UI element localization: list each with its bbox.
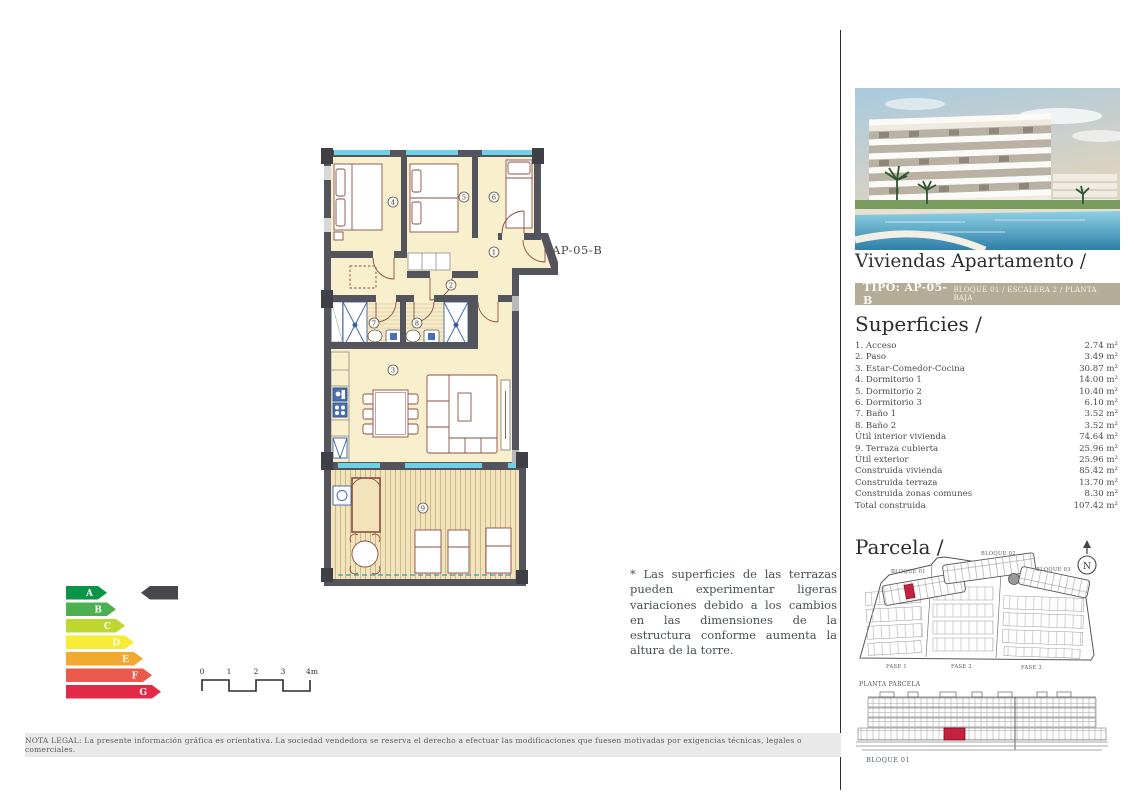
terrace-storage [352,478,380,532]
svg-text:BLOQUE 02: BLOQUE 02 [981,551,1016,557]
energy-pointer-icon [141,586,178,600]
superficies-row-value: 25.96 m² [1079,444,1118,455]
superficies-row: 4. Dormitorio 114.00 m² [855,375,1118,386]
highlighted-unit-elevation [944,728,965,740]
superficies-row-label: Total construida [855,501,926,512]
superficies-row-label: 4. Dormitorio 1 [855,375,922,386]
superficies-row: Útil exterior25.96 m² [855,455,1118,466]
site-plan: BLOQUE 01 BLOQUE 02 BLOQUE 03 FASE 1 FAS… [853,535,1120,690]
svg-text:B: B [94,606,102,616]
superficies-row-label: Construida terraza [855,478,937,489]
superficies-row-value: 8.30 m² [1085,489,1118,500]
bedroom3-bed [506,160,532,228]
svg-text:5: 5 [462,194,466,202]
svg-text:D: D [112,639,120,649]
floor-bands [858,698,1106,740]
shower-2 [444,302,468,348]
type-badge-location: BLOQUE 01 / ESCALERA 2 / PLANTA BAJA [953,286,1112,302]
svg-text:N: N [1083,562,1091,572]
page-title: Viviendas Apartamento / [855,251,1086,272]
superficies-row-label: Construida vivienda [855,466,942,477]
terrace-note: * Las superficies de las terrazas pueden… [630,567,837,659]
dining-table [363,390,418,437]
building-elevation: BLOQUE 01 [852,690,1112,766]
site-plan-caption: PLANTA PARCELA [859,681,921,688]
superficies-row-value: 10.40 m² [1079,387,1118,398]
bedroom1-bed [334,164,382,240]
superficies-row-value: 85.42 m² [1079,466,1118,477]
svg-text:C: C [104,622,111,632]
wardrobe [408,253,450,270]
superficies-row-value: 2.74 m² [1085,341,1118,352]
superficies-row: 3. Estar-Comedor-Cocina30.87 m² [855,364,1118,375]
svg-text:6: 6 [492,194,496,202]
brochure-page: 1 2 3 4 5 6 7 8 9 AP-05-B * Las superfic… [0,0,1134,800]
sink-1 [368,330,382,342]
superficies-row: Construida zonas comunes8.30 m² [855,489,1118,500]
elevation-label: BLOQUE 01 [866,756,910,764]
superficies-row: 6. Dormitorio 36.10 m² [855,398,1118,409]
superficies-row: Construida vivienda85.42 m² [855,466,1118,477]
type-badge: TIPO: AP-05-B BLOQUE 01 / ESCALERA 2 / P… [855,283,1120,305]
svg-text:E: E [122,655,129,665]
svg-text:8: 8 [415,320,419,328]
svg-text:A: A [85,589,94,599]
svg-text:BLOQUE 03: BLOQUE 03 [1036,567,1071,573]
svg-text:FASE 1: FASE 1 [886,664,907,670]
superficies-row: 2. Paso3.49 m² [855,352,1118,363]
superficies-row-value: 3.52 m² [1085,421,1118,432]
superficies-row: 1. Acceso2.74 m² [855,341,1118,352]
vertical-divider [840,30,841,790]
svg-text:9: 9 [421,505,425,513]
building-photo [855,88,1120,250]
superficies-row: Construida terraza13.70 m² [855,478,1118,489]
superficies-row-value: 107.42 m² [1074,501,1118,512]
superficies-list: 1. Acceso2.74 m²2. Paso3.49 m²3. Estar-C… [855,341,1118,512]
unit-code-label: AP-05-B [552,243,602,257]
type-badge-code: TIPO: AP-05-B [863,281,953,307]
svg-text:BLOQUE 01: BLOQUE 01 [891,569,926,575]
superficies-row-label: 3. Estar-Comedor-Cocina [855,364,965,375]
superficies-row-value: 6.10 m² [1085,398,1118,409]
floor-plan: 1 2 3 4 5 6 7 8 9 [318,146,558,596]
sink-2 [406,330,420,342]
roof-line [868,692,1096,697]
superficies-row: 7. Baño 13.52 m² [855,409,1118,420]
superficies-row-label: 7. Baño 1 [855,409,896,420]
svg-text:4: 4 [391,199,395,207]
superficies-row: 8. Baño 23.52 m² [855,421,1118,432]
energy-rating-chart: A B C D E F G [62,582,190,704]
superficies-row-value: 13.70 m² [1079,478,1118,489]
terrace-washer [333,486,351,505]
svg-text:G: G [139,688,147,698]
plaza-circle [1009,574,1020,585]
svg-text:1: 1 [227,667,232,676]
coffee-table [458,393,471,421]
superficies-row-label: 5. Dormitorio 2 [855,387,922,398]
svg-text:FASE 3: FASE 3 [1021,665,1042,671]
superficies-row-label: Útil interior vivienda [855,432,946,443]
svg-text:2: 2 [254,667,259,676]
sideboard [501,380,510,450]
energy-bars: A B C D E F G [66,586,161,699]
superficies-row-label: 8. Baño 2 [855,421,896,432]
superficies-row: Útil interior vivienda74.64 m² [855,432,1118,443]
svg-text:FASE 2: FASE 2 [951,664,972,670]
svg-text:4m: 4m [306,667,318,676]
svg-text:2: 2 [449,282,453,290]
svg-text:7: 7 [372,320,376,328]
svg-text:0: 0 [200,667,205,676]
superficies-row-label: 9. Terraza cubierta [855,444,938,455]
svg-text:3: 3 [391,367,395,375]
superficies-row: Total construida107.42 m² [855,501,1118,512]
superficies-row-label: Construida zonas comunes [855,489,972,500]
superficies-row-value: 25.96 m² [1079,455,1118,466]
ground-lines [856,742,1108,750]
legal-note-text: NOTA LEGAL: La presente información gráf… [25,736,841,754]
superficies-row-label: 6. Dormitorio 3 [855,398,922,409]
superficies-row-value: 30.87 m² [1079,364,1118,375]
superficies-row-label: 1. Acceso [855,341,896,352]
superficies-row-value: 74.64 m² [1079,432,1118,443]
svg-text:3: 3 [281,667,286,676]
scale-bar: 0 1 2 3 4m [194,662,326,696]
superficies-row-value: 3.49 m² [1085,352,1118,363]
svg-text:1: 1 [492,249,496,257]
terrace-loungers [415,528,511,573]
svg-text:F: F [132,672,139,682]
north-compass-icon: N [1078,540,1096,574]
sofa [427,375,497,453]
superficies-row-label: Útil exterior [855,455,909,466]
legal-note-bar: NOTA LEGAL: La presente información gráf… [25,733,841,757]
superficies-row-value: 3.52 m² [1085,409,1118,420]
shower-1 [343,302,367,348]
superficies-title: Superficies / [855,312,982,336]
superficies-row: 5. Dormitorio 210.40 m² [855,387,1118,398]
bedroom2-beds [410,164,458,232]
superficies-row-value: 14.00 m² [1079,375,1118,386]
superficies-row-label: 2. Paso [855,352,886,363]
superficies-row: 9. Terraza cubierta25.96 m² [855,444,1118,455]
